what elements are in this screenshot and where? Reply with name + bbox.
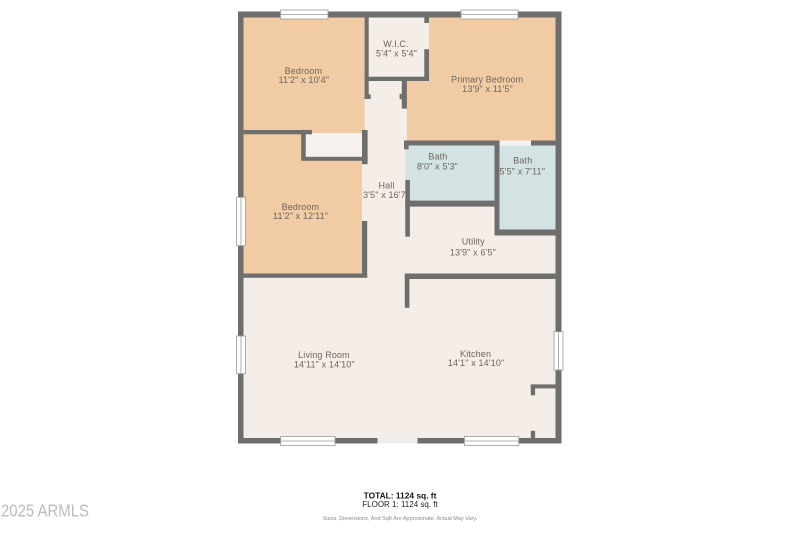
svg-text:Bath: Bath <box>428 152 447 162</box>
svg-text:FLOOR 1: 1124 sq. ft: FLOOR 1: 1124 sq. ft <box>362 500 438 509</box>
svg-text:3'5" x 16'7": 3'5" x 16'7" <box>363 190 409 200</box>
svg-text:Primary Bedroom: Primary Bedroom <box>451 74 523 84</box>
svg-text:Sizes, Dimensions, And Sqft Ar: Sizes, Dimensions, And Sqft Are Approxim… <box>323 516 478 522</box>
svg-text:Living Room: Living Room <box>298 350 350 360</box>
svg-text:W.I.C.: W.I.C. <box>383 39 408 49</box>
svg-text:11'2" x 12'11": 11'2" x 12'11" <box>273 211 328 221</box>
svg-text:Utility: Utility <box>462 236 485 246</box>
svg-text:5'5" x 7'11": 5'5" x 7'11" <box>500 166 546 176</box>
svg-text:14'11" x 14'10": 14'11" x 14'10" <box>294 360 355 370</box>
svg-text:8'0" x 5'3": 8'0" x 5'3" <box>417 162 458 172</box>
svg-text:13'9" x 6'5": 13'9" x 6'5" <box>450 247 496 257</box>
svg-text:5'4" x 5'4": 5'4" x 5'4" <box>376 49 417 59</box>
svg-text:13'9" x 11'5": 13'9" x 11'5" <box>462 84 513 94</box>
svg-text:11'2" x 10'4": 11'2" x 10'4" <box>278 75 329 85</box>
svg-text:2025 ARMLS: 2025 ARMLS <box>1 501 89 521</box>
svg-text:Bath: Bath <box>513 156 532 166</box>
svg-text:14'1" x 14'10": 14'1" x 14'10" <box>448 358 504 368</box>
